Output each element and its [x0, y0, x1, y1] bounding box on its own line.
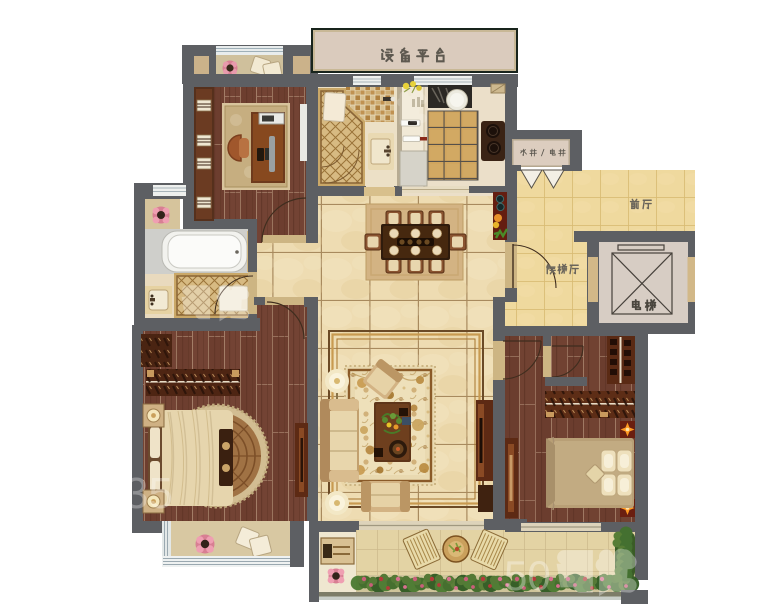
- svg-text:35: 35: [124, 469, 173, 518]
- svg-text:50: 50: [504, 552, 551, 599]
